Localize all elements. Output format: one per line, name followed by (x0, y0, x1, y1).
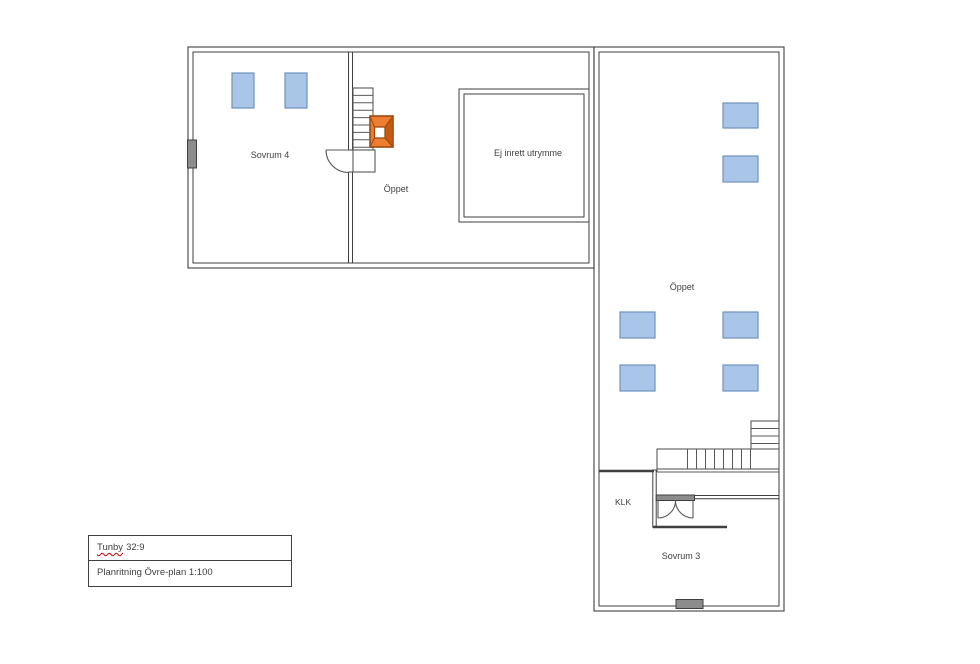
room-label-oppet-wing: Öppet (670, 282, 695, 292)
property-number: 32:9 (126, 542, 145, 553)
skylight (620, 365, 655, 391)
room-label-klk: KLK (615, 497, 631, 507)
skylight (723, 312, 758, 338)
skylight (723, 156, 758, 182)
chimney-icon (370, 116, 393, 147)
room-label-sovrum3: Sovrum 3 (662, 551, 701, 561)
title-block: Tunby32:9 Planritning Övre-plan 1:100 (88, 535, 292, 587)
drawing-title: Planritning Övre-plan 1:100 (89, 560, 291, 585)
room-label-oppet-mid: Öppet (384, 184, 409, 194)
property-name: Tunby (97, 542, 123, 553)
skylight (723, 103, 758, 128)
door-sovrum4 (326, 150, 349, 173)
partition-wall (349, 52, 353, 263)
sovrum3-wall (695, 496, 780, 499)
stair-landing (353, 150, 375, 172)
room-label-sovrum4: Sovrum 4 (251, 150, 290, 160)
skylight (232, 73, 254, 108)
room-label-ej-inrett: Ej inrett utrymme (494, 148, 562, 158)
skylight (620, 312, 655, 338)
right-wing-block: Öppet KLK Sovrum 3 (594, 47, 784, 611)
floorplan-page: Sovrum 4 Öppet Ej inrett utrymme (0, 0, 980, 664)
double-door-sovrum3 (656, 495, 694, 518)
skylight (723, 365, 758, 391)
window-marker (188, 140, 197, 168)
staircase-wing (657, 421, 779, 472)
skylight (285, 73, 307, 108)
window-marker (676, 600, 703, 609)
title-block-property-row: Tunby32:9 (89, 536, 291, 560)
upper-left-block: Sovrum 4 Öppet Ej inrett utrymme (188, 47, 595, 268)
